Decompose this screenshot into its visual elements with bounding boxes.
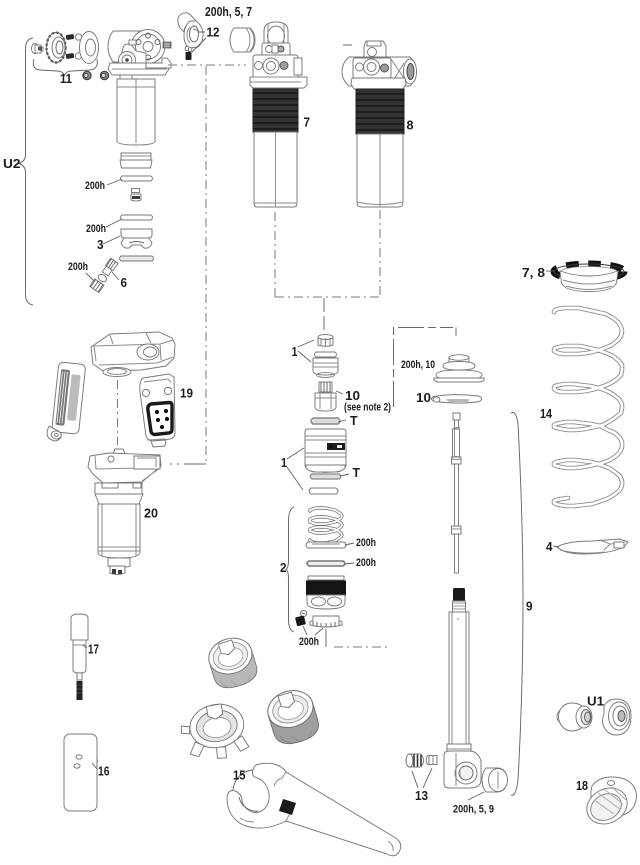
svg-text:200h: 200h [86, 223, 106, 235]
svg-text:200h: 200h [68, 261, 88, 273]
svg-text:13: 13 [415, 788, 428, 803]
svg-text:2: 2 [280, 560, 287, 575]
svg-text:18: 18 [576, 778, 588, 793]
svg-text:7: 7 [304, 115, 311, 130]
svg-text:200h, 10: 200h, 10 [401, 359, 435, 371]
svg-text:3: 3 [97, 237, 104, 252]
svg-text:20: 20 [144, 506, 158, 521]
svg-text:6: 6 [121, 275, 128, 290]
svg-text:1: 1 [292, 344, 298, 359]
svg-text:200h, 5, 9: 200h, 5, 9 [453, 804, 494, 816]
svg-text:14: 14 [540, 406, 553, 421]
svg-text:16: 16 [98, 764, 110, 779]
svg-text:200h, 5, 7: 200h, 5, 7 [205, 4, 252, 19]
svg-text:U1: U1 [587, 694, 604, 709]
svg-text:17: 17 [88, 642, 99, 657]
svg-text:1: 1 [281, 455, 287, 470]
svg-text:T: T [350, 413, 358, 428]
svg-text:7, 8: 7, 8 [522, 265, 545, 280]
svg-text:200h: 200h [299, 636, 319, 648]
svg-text:4: 4 [546, 539, 553, 554]
svg-text:U2: U2 [3, 156, 21, 171]
svg-text:T: T [353, 465, 361, 480]
svg-text:8: 8 [407, 118, 414, 133]
svg-text:10: 10 [416, 390, 431, 405]
svg-text:9: 9 [526, 599, 533, 614]
svg-text:200h: 200h [356, 557, 376, 569]
svg-text:200h: 200h [356, 537, 376, 549]
svg-text:(see note 2): (see note 2) [344, 402, 391, 414]
svg-text:15: 15 [233, 768, 246, 783]
svg-text:19: 19 [180, 386, 193, 401]
svg-text:12: 12 [207, 25, 220, 40]
svg-text:11: 11 [60, 71, 72, 86]
svg-text:200h: 200h [85, 180, 105, 192]
